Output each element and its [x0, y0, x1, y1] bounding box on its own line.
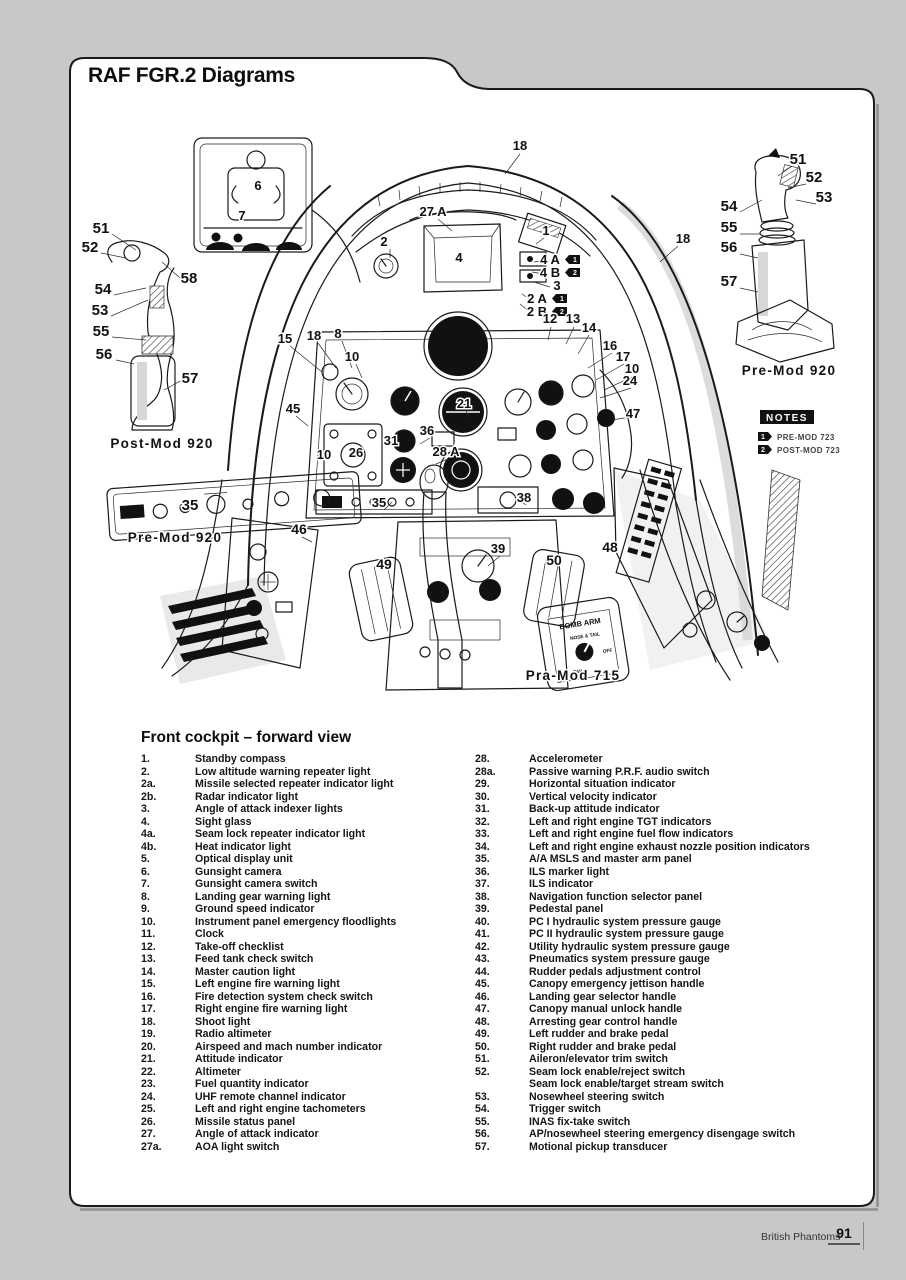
- note-item-text: POST-MOD 723: [777, 446, 840, 455]
- legend-item-label: Canopy emergency jettison handle: [529, 978, 860, 991]
- legend-item-label: Standby compass: [195, 753, 466, 766]
- legend-item-number: 4a.: [141, 828, 195, 841]
- legend-item: 17.Right engine fire warning light: [141, 1003, 466, 1016]
- legend-item-number: 26.: [141, 1116, 195, 1129]
- legend-item-label: Feed tank check switch: [195, 953, 466, 966]
- diagram-callout: 35: [372, 495, 386, 510]
- legend-item-label: Back-up attitude indicator: [529, 803, 860, 816]
- page-title: RAF FGR.2 Diagrams: [88, 64, 295, 88]
- legend-item-number: 9.: [141, 903, 195, 916]
- legend-item: 4b.Heat indicator light: [141, 841, 466, 854]
- legend-item-number: 53.: [475, 1091, 529, 1104]
- legend-item: 57.Motional pickup transducer: [475, 1141, 860, 1154]
- legend-item: 5.Optical display unit: [141, 853, 466, 866]
- legend-item-number: 27a.: [141, 1141, 195, 1154]
- diagram-callout: 26: [349, 445, 363, 460]
- legend-item-label: Low altitude warning repeater light: [195, 766, 466, 779]
- legend-item-number: 7.: [141, 878, 195, 891]
- legend-item-label: Ground speed indicator: [195, 903, 466, 916]
- legend-item-label: Optical display unit: [195, 853, 466, 866]
- legend-item: 32.Left and right engine TGT indicators: [475, 816, 860, 829]
- diagram-callout: 51: [93, 220, 110, 237]
- diagram-callout: 49: [376, 556, 392, 572]
- notes-title: NOTES: [766, 413, 808, 424]
- legend-item-number: 34.: [475, 841, 529, 854]
- diagram-callout: 15: [278, 331, 292, 346]
- mod-flag-number: 1: [573, 257, 577, 264]
- legend-item: 1.Standby compass: [141, 753, 466, 766]
- legend-item: 24.UHF remote channel indicator: [141, 1091, 466, 1104]
- diagram-callout: 51: [790, 151, 807, 168]
- diagram-callout: 28 A: [433, 444, 461, 459]
- legend-item-number: 55.: [475, 1116, 529, 1129]
- legend-item-label: Utility hydraulic system pressure gauge: [529, 941, 860, 954]
- legend-item-number: 50.: [475, 1041, 529, 1054]
- legend-item-label: Landing gear selector handle: [529, 991, 860, 1004]
- legend-item-label: Clock: [195, 928, 466, 941]
- legend-item: 6.Gunsight camera: [141, 866, 466, 879]
- diagram-callout: 8: [334, 326, 341, 341]
- legend-item-number: 2b.: [141, 791, 195, 804]
- legend-item-number: 2a.: [141, 778, 195, 791]
- legend-item-number: 2.: [141, 766, 195, 779]
- legend-item-label: INAS fix-take switch: [529, 1116, 860, 1129]
- legend-item: 30.Vertical velocity indicator: [475, 791, 860, 804]
- legend-item: 27a.AOA light switch: [141, 1141, 466, 1154]
- legend-column-right: 28.Accelerometer28a.Passive warning P.R.…: [475, 753, 860, 1153]
- diagram-callout: 14: [582, 320, 597, 335]
- legend-item-label: Shoot light: [195, 1016, 466, 1029]
- legend-item-number: 17.: [141, 1003, 195, 1016]
- diagram-callout: 56: [96, 346, 113, 363]
- legend-item-label: Seam lock enable/target stream switch: [529, 1078, 860, 1091]
- legend-item-label: Canopy manual unlock handle: [529, 1003, 860, 1016]
- legend-item-number: 6.: [141, 866, 195, 879]
- legend-item: 15.Left engine fire warning light: [141, 978, 466, 991]
- legend-item-label: Right engine fire warning light: [195, 1003, 466, 1016]
- legend-item-label: Angle of attack indicator: [195, 1128, 466, 1141]
- legend-item: 51.Aileron/elevator trim switch: [475, 1053, 860, 1066]
- legend-item: 55.INAS fix-take switch: [475, 1116, 860, 1129]
- diagram-callout: 2: [380, 234, 387, 249]
- legend-item-label: Fuel quantity indicator: [195, 1078, 466, 1091]
- legend-item-number: 40.: [475, 916, 529, 929]
- legend-item-label: Aileron/elevator trim switch: [529, 1053, 860, 1066]
- legend-item-label: Missile selected repeater indicator ligh…: [195, 778, 466, 791]
- diagram-callout: 45: [286, 401, 300, 416]
- legend-item: 26.Missile status panel: [141, 1116, 466, 1129]
- legend-item-number: 11.: [141, 928, 195, 941]
- legend-item-label: AP/nosewheel steering emergency disengag…: [529, 1128, 860, 1141]
- legend-item: 28.Accelerometer: [475, 753, 860, 766]
- legend-item: 22.Altimeter: [141, 1066, 466, 1079]
- diagram-mod-label: Pre-Mod 920: [128, 530, 223, 545]
- legend-item-number: 35.: [475, 853, 529, 866]
- legend-item: 14.Master caution light: [141, 966, 466, 979]
- legend-item-label: Left engine fire warning light: [195, 978, 466, 991]
- legend-item-number: [475, 1078, 529, 1091]
- legend-item-number: 36.: [475, 866, 529, 879]
- legend-item-number: 31.: [475, 803, 529, 816]
- legend-item: 34.Left and right engine exhaust nozzle …: [475, 841, 860, 854]
- legend-item: 56.AP/nosewheel steering emergency disen…: [475, 1128, 860, 1141]
- legend-item-label: Gunsight camera switch: [195, 878, 466, 891]
- diagram-callout: 38: [517, 490, 531, 505]
- diagram-callout: 10: [317, 447, 331, 462]
- legend-item-number: 4b.: [141, 841, 195, 854]
- note-item-text: PRE-MOD 723: [777, 433, 835, 442]
- legend-item: 54.Trigger switch: [475, 1103, 860, 1116]
- legend-item-label: Left and right engine fuel flow indicato…: [529, 828, 860, 841]
- diagram-callout: 57: [721, 273, 738, 290]
- legend-item-number: 30.: [475, 791, 529, 804]
- legend-item-number: 21.: [141, 1053, 195, 1066]
- legend-item-label: Attitude indicator: [195, 1053, 466, 1066]
- legend-item: 8.Landing gear warning light: [141, 891, 466, 904]
- legend-item: 11.Clock: [141, 928, 466, 941]
- legend-item-label: Pneumatics system pressure gauge: [529, 953, 860, 966]
- legend-item-number: 32.: [475, 816, 529, 829]
- legend-item-number: 39.: [475, 903, 529, 916]
- diagram-callout: 1: [542, 223, 549, 238]
- legend-item: 9.Ground speed indicator: [141, 903, 466, 916]
- legend-item-number: 47.: [475, 1003, 529, 1016]
- diagram-callout: 3: [553, 278, 560, 293]
- legend-item-number: 22.: [141, 1066, 195, 1079]
- legend-item: 38.Navigation function selector panel: [475, 891, 860, 904]
- legend-item-number: 41.: [475, 928, 529, 941]
- legend-item-label: PC I hydraulic system pressure gauge: [529, 916, 860, 929]
- diagram-callout: 52: [806, 169, 823, 186]
- legend-item-number: 56.: [475, 1128, 529, 1141]
- diagram-callout: 56: [721, 239, 738, 256]
- legend-item-label: Left and right engine TGT indicators: [529, 816, 860, 829]
- diagram-callout: 36: [420, 423, 434, 438]
- legend-item-number: 23.: [141, 1078, 195, 1091]
- legend-item: 41.PC II hydraulic system pressure gauge: [475, 928, 860, 941]
- footer-divider: [863, 1222, 864, 1250]
- legend-item-number: 28a.: [475, 766, 529, 779]
- legend-item-label: Arresting gear control handle: [529, 1016, 860, 1029]
- diagram-callout: 7: [238, 208, 245, 223]
- diagram-callout: 12: [543, 311, 557, 326]
- legend-item: Seam lock enable/target stream switch: [475, 1078, 860, 1091]
- diagram-callout: 55: [93, 323, 110, 340]
- legend-item-label: Nosewheel steering switch: [529, 1091, 860, 1104]
- legend-item-label: UHF remote channel indicator: [195, 1091, 466, 1104]
- legend-item: 16.Fire detection system check switch: [141, 991, 466, 1004]
- legend-item-label: Radar indicator light: [195, 791, 466, 804]
- diagram-callout: 27 A: [420, 204, 448, 219]
- legend-item-number: 20.: [141, 1041, 195, 1054]
- legend-item-number: 37.: [475, 878, 529, 891]
- legend-item-number: 10.: [141, 916, 195, 929]
- legend-item: 10.Instrument panel emergency floodlight…: [141, 916, 466, 929]
- legend-item-number: 38.: [475, 891, 529, 904]
- diagram-callout: 57: [182, 370, 199, 387]
- legend-item: 44.Rudder pedals adjustment control: [475, 966, 860, 979]
- legend-item-number: 45.: [475, 978, 529, 991]
- diagram-callout: 54: [95, 281, 112, 298]
- legend-item: 31.Back-up attitude indicator: [475, 803, 860, 816]
- legend-item: 33.Left and right engine fuel flow indic…: [475, 828, 860, 841]
- legend-item-label: Right rudder and brake pedal: [529, 1041, 860, 1054]
- legend-item: 52.Seam lock enable/reject switch: [475, 1066, 860, 1079]
- diagram-callout: 18: [307, 328, 321, 343]
- legend-item-label: Left and right engine exhaust nozzle pos…: [529, 841, 860, 854]
- legend-item-label: Radio altimeter: [195, 1028, 466, 1041]
- legend-item-number: 8.: [141, 891, 195, 904]
- mod-flag-number: 1: [560, 296, 564, 303]
- note-flag-number: 2: [761, 447, 765, 454]
- legend-item: 37.ILS indicator: [475, 878, 860, 891]
- diagram-mod-label: Pra-Mod 715: [526, 668, 621, 683]
- legend-item-number: 43.: [475, 953, 529, 966]
- legend-item-label: Seam lock repeater indicator light: [195, 828, 466, 841]
- diagram-callout: 13: [566, 311, 580, 326]
- legend-item: 7.Gunsight camera switch: [141, 878, 466, 891]
- legend-item-number: 28.: [475, 753, 529, 766]
- legend-item: 21.Attitude indicator: [141, 1053, 466, 1066]
- legend-item-label: Navigation function selector panel: [529, 891, 860, 904]
- legend-item-label: Passive warning P.R.F. audio switch: [529, 766, 860, 779]
- diagram-callout: 52: [82, 239, 99, 256]
- diagram-callout: 31: [384, 433, 398, 448]
- diagram-callout: 58: [181, 270, 198, 287]
- diagram-callout: 18: [676, 231, 690, 246]
- legend-item: 19.Radio altimeter: [141, 1028, 466, 1041]
- legend-item-number: 24.: [141, 1091, 195, 1104]
- legend-item-label: PC II hydraulic system pressure gauge: [529, 928, 860, 941]
- legend-heading: Front cockpit – forward view: [141, 729, 351, 747]
- legend-item: 49.Left rudder and brake pedal: [475, 1028, 860, 1041]
- note-flag-number: 1: [761, 434, 765, 441]
- legend-item-label: Fire detection system check switch: [195, 991, 466, 1004]
- legend-item-number: 13.: [141, 953, 195, 966]
- legend-item-label: ILS indicator: [529, 878, 860, 891]
- legend-item-label: Landing gear warning light: [195, 891, 466, 904]
- diagram-callout: 47: [626, 406, 640, 421]
- legend-item: 36.ILS marker light: [475, 866, 860, 879]
- diagram-callout: 48: [602, 539, 618, 555]
- legend-item-number: 16.: [141, 991, 195, 1004]
- legend-item-label: Take-off checklist: [195, 941, 466, 954]
- legend-item-label: Master caution light: [195, 966, 466, 979]
- legend-item: 18.Shoot light: [141, 1016, 466, 1029]
- legend-item: 40.PC I hydraulic system pressure gauge: [475, 916, 860, 929]
- legend-item: 48.Arresting gear control handle: [475, 1016, 860, 1029]
- legend-item-label: Left and right engine tachometers: [195, 1103, 466, 1116]
- legend-item-number: 25.: [141, 1103, 195, 1116]
- legend-item-number: 1.: [141, 753, 195, 766]
- diagram-callout: 24: [623, 373, 638, 388]
- legend-item-number: 42.: [475, 941, 529, 954]
- legend-item: 35.A/A MSLS and master arm panel: [475, 853, 860, 866]
- legend-item-number: 12.: [141, 941, 195, 954]
- legend-item: 43.Pneumatics system pressure gauge: [475, 953, 860, 966]
- diagram-callout: 55: [721, 219, 738, 236]
- legend-item-label: Left rudder and brake pedal: [529, 1028, 860, 1041]
- diagram-callout: 53: [816, 189, 833, 206]
- legend-item: 2b.Radar indicator light: [141, 791, 466, 804]
- legend-item-label: A/A MSLS and master arm panel: [529, 853, 860, 866]
- legend-item-label: Seam lock enable/reject switch: [529, 1066, 860, 1079]
- legend-item: 45.Canopy emergency jettison handle: [475, 978, 860, 991]
- legend-item-number: 48.: [475, 1016, 529, 1029]
- legend-item-number: 19.: [141, 1028, 195, 1041]
- legend-item-label: Airspeed and mach number indicator: [195, 1041, 466, 1054]
- legend-item: 39.Pedestal panel: [475, 903, 860, 916]
- legend-item-number: 4.: [141, 816, 195, 829]
- diagram-callout: 4: [455, 250, 463, 265]
- legend-item-number: 33.: [475, 828, 529, 841]
- footer-page-number: 91: [828, 1225, 860, 1245]
- diagram-callout: 50: [546, 552, 562, 568]
- diagram-callout: 54: [721, 198, 738, 215]
- mod-flag-number: 2: [573, 270, 577, 277]
- legend-item-label: AOA light switch: [195, 1141, 466, 1154]
- legend-item-label: Vertical velocity indicator: [529, 791, 860, 804]
- legend-item-number: 44.: [475, 966, 529, 979]
- legend-item-label: Instrument panel emergency floodlights: [195, 916, 466, 929]
- legend-item-number: 46.: [475, 991, 529, 1004]
- legend-item-number: 14.: [141, 966, 195, 979]
- legend-item-number: 3.: [141, 803, 195, 816]
- diagram-callout: 39: [491, 541, 505, 556]
- legend-item-number: 49.: [475, 1028, 529, 1041]
- diagram-callout: 10: [345, 349, 359, 364]
- legend-item-label: Sight glass: [195, 816, 466, 829]
- legend-item: 50.Right rudder and brake pedal: [475, 1041, 860, 1054]
- legend-item-label: Trigger switch: [529, 1103, 860, 1116]
- legend-item: 4a.Seam lock repeater indicator light: [141, 828, 466, 841]
- legend-item: 12.Take-off checklist: [141, 941, 466, 954]
- legend-item-label: Rudder pedals adjustment control: [529, 966, 860, 979]
- legend-item: 13.Feed tank check switch: [141, 953, 466, 966]
- legend-item-label: ILS marker light: [529, 866, 860, 879]
- legend-item-number: 5.: [141, 853, 195, 866]
- legend-column-left: 1.Standby compass2.Low altitude warning …: [141, 753, 466, 1153]
- legend-item-label: Gunsight camera: [195, 866, 466, 879]
- legend-item-number: 51.: [475, 1053, 529, 1066]
- diagram-callout: 18: [513, 138, 527, 153]
- book-page: { "page": { "title": "RAF FGR.2 Diagrams…: [0, 0, 906, 1280]
- diagram-callout: 46: [291, 521, 307, 537]
- legend-item-label: Altimeter: [195, 1066, 466, 1079]
- legend-item-number: 18.: [141, 1016, 195, 1029]
- legend-item: 25.Left and right engine tachometers: [141, 1103, 466, 1116]
- legend-item: 28a.Passive warning P.R.F. audio switch: [475, 766, 860, 779]
- legend-item-number: 54.: [475, 1103, 529, 1116]
- diagram-callout: 6: [254, 178, 261, 193]
- legend-item: 53.Nosewheel steering switch: [475, 1091, 860, 1104]
- diagram-mod-label: Pre-Mod 920: [742, 363, 837, 378]
- legend-item-label: Missile status panel: [195, 1116, 466, 1129]
- diagram-mod-label: Post-Mod 920: [110, 436, 213, 451]
- legend-item: 46.Landing gear selector handle: [475, 991, 860, 1004]
- legend-item-number: 57.: [475, 1141, 529, 1154]
- legend-item: 2.Low altitude warning repeater light: [141, 766, 466, 779]
- legend-item: 29.Horizontal situation indicator: [475, 778, 860, 791]
- legend-item-label: Horizontal situation indicator: [529, 778, 860, 791]
- legend-item: 4.Sight glass: [141, 816, 466, 829]
- legend-item-label: Angle of attack indexer lights: [195, 803, 466, 816]
- diagram-callout: 53: [92, 302, 109, 319]
- legend-item: 42.Utility hydraulic system pressure gau…: [475, 941, 860, 954]
- legend-item-label: Accelerometer: [529, 753, 860, 766]
- legend-item-number: 52.: [475, 1066, 529, 1079]
- diagram-callout: 35: [182, 497, 199, 514]
- mod-flag-number: 2: [560, 309, 564, 316]
- legend-item: 47.Canopy manual unlock handle: [475, 1003, 860, 1016]
- legend-item: 3.Angle of attack indexer lights: [141, 803, 466, 816]
- legend-item: 23.Fuel quantity indicator: [141, 1078, 466, 1091]
- legend-item: 27.Angle of attack indicator: [141, 1128, 466, 1141]
- legend-item-label: Heat indicator light: [195, 841, 466, 854]
- legend-item: 20.Airspeed and mach number indicator: [141, 1041, 466, 1054]
- legend-item-number: 29.: [475, 778, 529, 791]
- legend-item-number: 15.: [141, 978, 195, 991]
- diagram-callout: 21: [457, 396, 471, 411]
- legend-item-number: 27.: [141, 1128, 195, 1141]
- legend-item-label: Pedestal panel: [529, 903, 860, 916]
- legend-item-label: Motional pickup transducer: [529, 1141, 860, 1154]
- legend-item: 2a.Missile selected repeater indicator l…: [141, 778, 466, 791]
